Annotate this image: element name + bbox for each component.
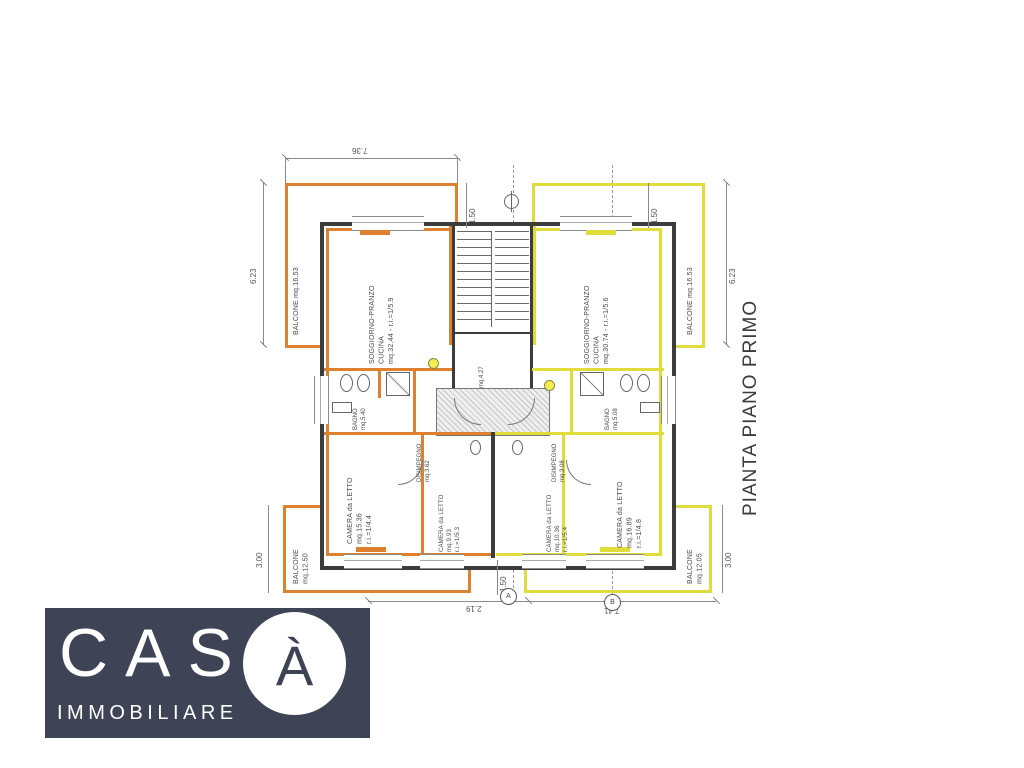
landing-hatch xyxy=(436,388,550,436)
balcony-bottom-left-outline xyxy=(283,590,471,593)
dimension-extension xyxy=(285,158,286,183)
partition-left xyxy=(324,432,492,435)
room-label-balcony-top-right: BALCONE mq.16.53 xyxy=(686,210,695,335)
balcony-top-left-outline xyxy=(285,183,458,186)
dimension-label-side-right: 6.23 xyxy=(728,244,739,284)
light-point-marker xyxy=(428,358,439,369)
window xyxy=(352,216,424,231)
window xyxy=(522,554,566,569)
balcony-top-left-outline xyxy=(455,183,458,225)
dimension-line xyxy=(648,183,649,228)
bidet-fixture xyxy=(357,374,370,392)
room-label-bedroom-left: CAMERA da LETTO mq.15.36 r.i.=1/4.4 xyxy=(346,448,374,544)
section-marker-b: B xyxy=(604,594,621,611)
toilet-fixture xyxy=(340,374,353,392)
room-label-hall-right: DISIMPEGNO mq.3.08 xyxy=(551,424,567,482)
sink-fixture xyxy=(640,402,660,413)
partition-right xyxy=(532,368,664,371)
dimension-label-top: 7.36 xyxy=(352,146,368,155)
light-point-marker xyxy=(544,380,555,391)
dimension-label-bottom-side-right: 3.00 xyxy=(724,528,735,568)
room-label-hall-left: DISIMPEGNO mq.3.62 xyxy=(416,424,432,482)
dimension-line xyxy=(726,183,727,345)
logo-accent-letter: À xyxy=(276,629,313,698)
stair-landing-edge xyxy=(455,332,531,334)
logo-subtitle: IMMOBILIARE xyxy=(57,702,238,725)
dimension-label-top-gap-left: 1.50 xyxy=(468,190,479,224)
dimension-line xyxy=(268,505,269,593)
radiator xyxy=(586,230,616,235)
balcony-top-left-outline xyxy=(285,183,288,348)
balcony-top-right-outline xyxy=(532,183,535,225)
room-label-bath-left: BAGNO mq.5.40 xyxy=(352,394,368,430)
room-label-balcony-bottom-right: BALCONE mq.12.05 xyxy=(686,522,705,584)
window xyxy=(344,554,402,569)
window xyxy=(314,376,329,424)
radiator xyxy=(360,230,390,235)
floor-plan-page: PIANTA PIANO PRIMO xyxy=(0,0,1024,768)
agency-logo: CAS À IMMOBILIARE xyxy=(45,608,370,738)
room-label-bedroom-center-left: CAMERA da LETTO mq.9.93 r.i.=1/5.3 xyxy=(438,466,462,552)
room-label-balcony-bottom-left: BALCONE mq.12.50 xyxy=(292,522,311,584)
radiator xyxy=(356,547,386,552)
balcony-top-left-outline xyxy=(285,345,325,348)
logo-circle: À xyxy=(243,612,346,715)
balcony-bottom-left-outline xyxy=(283,505,286,593)
dimension-label-bottom-left-span: 2.19 xyxy=(466,604,482,613)
dimension-line xyxy=(466,183,467,228)
room-label-balcony-top-left: BALCONE mq.16.53 xyxy=(292,210,301,335)
balcony-top-right-outline xyxy=(702,183,705,348)
balcony-bottom-left-outline xyxy=(283,505,323,508)
dimension-label-bottom-side-left: 3.00 xyxy=(255,528,266,568)
shower-fixture xyxy=(580,372,604,396)
dimension-line xyxy=(263,183,264,345)
balcony-bottom-right-outline xyxy=(524,590,712,593)
wc-fixture xyxy=(512,440,523,455)
plan-title: PIANTA PIANO PRIMO xyxy=(740,276,762,516)
sink-fixture xyxy=(332,402,352,413)
dimension-extension xyxy=(457,158,458,183)
logo-wordmark: CAS xyxy=(59,614,250,692)
room-label-bedroom-right: CAMERA da LETTO mq.16.89 r.i.=1/4.8 xyxy=(616,452,644,548)
section-marker-a: A xyxy=(500,588,517,605)
window xyxy=(661,376,676,424)
window xyxy=(586,554,644,569)
bidet-fixture xyxy=(637,374,650,392)
room-label-living-right: SOGGIORNO-PRANZO CUCINA mq.30.74 - r.i.=… xyxy=(583,256,611,364)
partition-left xyxy=(413,368,416,432)
shower-fixture xyxy=(386,372,410,396)
stair-stringer xyxy=(491,231,495,327)
dimension-line xyxy=(497,560,498,595)
toilet-fixture xyxy=(620,374,633,392)
window xyxy=(560,216,632,231)
dimension-label-side-left: 6.23 xyxy=(249,244,260,284)
room-label-living-left: SOGGIORNO-PRANZO CUCINA mq.32.44 - r.i.=… xyxy=(368,256,396,364)
balcony-top-right-outline xyxy=(532,183,705,186)
stairwell-lining-left xyxy=(449,226,452,345)
room-label-bath-right: BAGNO mq.5.08 xyxy=(604,394,620,430)
benchmark-symbol xyxy=(504,194,519,209)
balcony-bottom-right-outline xyxy=(709,505,712,593)
party-wall xyxy=(491,432,495,558)
balcony-bottom-right-outline xyxy=(672,505,712,508)
room-label-entry: mq.4.27 xyxy=(478,358,486,388)
partition-left xyxy=(378,368,381,398)
dimension-label-top-gap-right: 1.50 xyxy=(650,190,661,224)
window xyxy=(420,554,464,569)
partition-right xyxy=(494,432,664,435)
partition-right xyxy=(570,368,573,432)
dimension-line xyxy=(722,505,723,593)
stairwell-lining-right xyxy=(533,226,536,345)
dimension-line xyxy=(368,601,716,602)
wc-fixture xyxy=(470,440,481,455)
dimension-line xyxy=(285,158,457,159)
